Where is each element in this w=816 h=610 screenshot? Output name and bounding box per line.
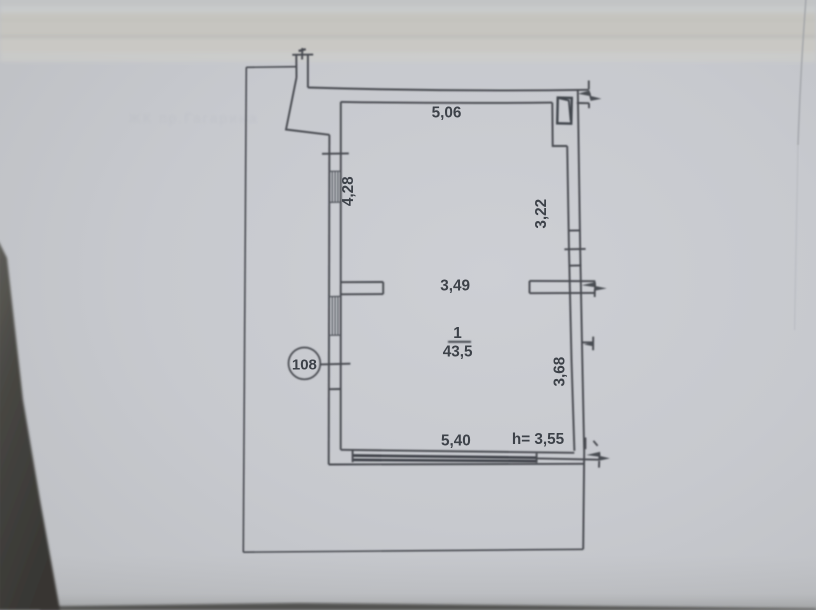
svg-text:43,5: 43,5	[443, 344, 473, 361]
svg-text:1: 1	[453, 325, 462, 342]
svg-text:3,49: 3,49	[440, 277, 470, 294]
svg-text:3,22: 3,22	[533, 199, 550, 229]
svg-text:h= 3,55: h= 3,55	[512, 431, 565, 448]
svg-text:5,06: 5,06	[432, 105, 462, 122]
svg-text:5,40: 5,40	[441, 433, 471, 450]
svg-text:3,68: 3,68	[552, 356, 569, 386]
svg-text:4,28: 4,28	[340, 176, 357, 206]
svg-text:108: 108	[292, 357, 317, 374]
svg-text:ЖК пр.Гагарина: ЖК пр.Гагарина	[128, 110, 259, 126]
